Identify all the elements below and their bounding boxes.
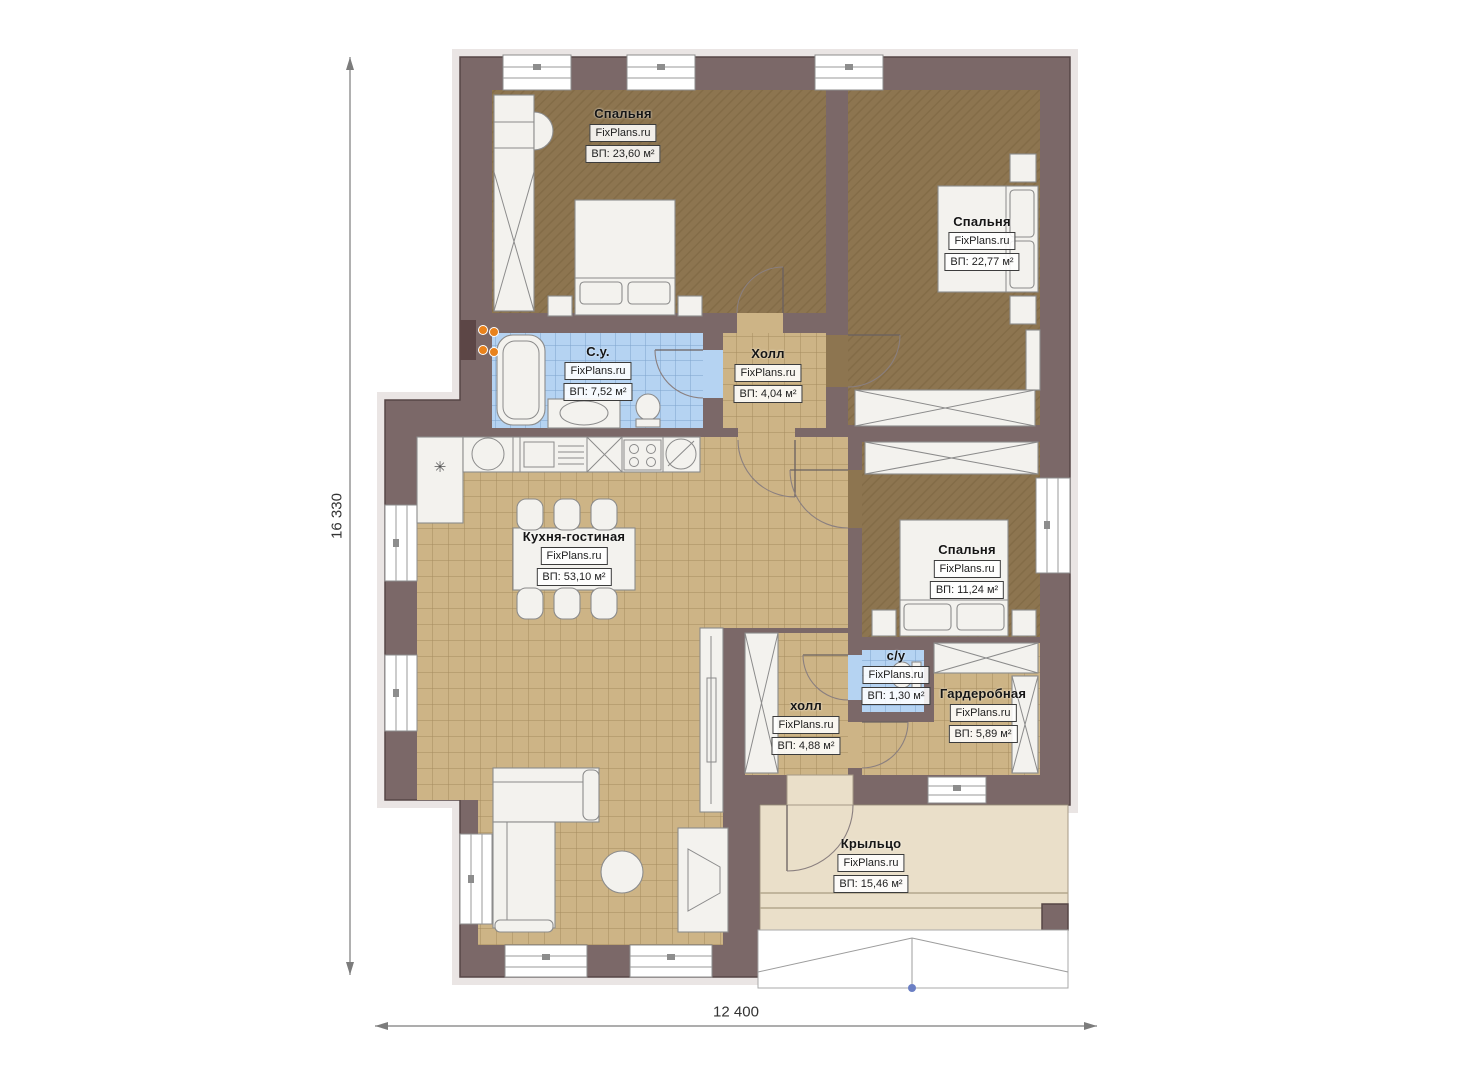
floor-plan-page: ✳	[0, 0, 1474, 1080]
dimension-width: 12 400	[713, 1004, 759, 1021]
nightstand	[1010, 154, 1036, 182]
nightstand	[548, 296, 572, 316]
room-name: Спальня	[594, 106, 652, 121]
dimension-height: 16 330	[329, 493, 346, 539]
nightstand	[1010, 296, 1036, 324]
vanity	[548, 399, 620, 428]
window	[630, 945, 712, 977]
room-label-porch: Крыльцо FixPlans.ru ВП: 15,46 м²	[833, 836, 908, 893]
room-name: С.у.	[586, 344, 610, 359]
room-label-kitchen: Кухня-гостиная FixPlans.ru ВП: 53,10 м²	[523, 529, 625, 586]
nightstand	[872, 610, 896, 636]
nightstand	[678, 296, 702, 316]
pillow	[957, 604, 1004, 630]
room-label-bedroom-1: Спальня FixPlans.ru ВП: 23,60 м²	[585, 106, 660, 163]
room-name: с/у	[887, 648, 906, 663]
fridge	[417, 437, 463, 523]
watermark: FixPlans.ru	[589, 124, 656, 142]
room-name: Спальня	[938, 542, 996, 557]
pillow	[628, 282, 670, 304]
watermark: FixPlans.ru	[862, 666, 929, 684]
watermark: FixPlans.ru	[837, 854, 904, 872]
watermark: FixPlans.ru	[933, 560, 1000, 578]
room-area: ВП: 7,52 м²	[563, 383, 632, 401]
room-name: Кухня-гостиная	[523, 529, 625, 544]
watermark: FixPlans.ru	[734, 364, 801, 382]
window	[815, 55, 883, 90]
floor-plan-canvas: ✳	[0, 0, 1474, 1080]
canopy-node	[908, 984, 916, 992]
watermark: FixPlans.ru	[564, 362, 631, 380]
room-name: Крыльцо	[841, 836, 902, 851]
room-area: ВП: 4,04 м²	[733, 385, 802, 403]
window	[505, 945, 587, 977]
window	[928, 777, 986, 803]
window	[385, 505, 417, 581]
porch-floor	[760, 805, 1068, 930]
room-area: ВП: 11,24 м²	[930, 581, 1004, 599]
room-label-hall-1: Холл FixPlans.ru ВП: 4,04 м²	[733, 346, 802, 403]
room-area: ВП: 5,89 м²	[948, 725, 1017, 743]
room-name: холл	[790, 698, 822, 713]
room-area: ВП: 15,46 м²	[833, 875, 908, 893]
room-area: ВП: 1,30 м²	[861, 687, 930, 705]
room-name: Спальня	[953, 214, 1011, 229]
pillow	[580, 282, 622, 304]
wardrobe-cabinet	[494, 95, 534, 311]
nightstand	[1012, 610, 1036, 636]
room-area: ВП: 53,10 м²	[536, 568, 611, 586]
room-label-bedroom-3: Спальня FixPlans.ru ВП: 11,24 м²	[930, 542, 1004, 599]
watermark: FixPlans.ru	[772, 716, 839, 734]
room-label-bedroom-2: Спальня FixPlans.ru ВП: 22,77 м²	[944, 214, 1019, 271]
toilet-tank	[636, 419, 660, 427]
watermark: FixPlans.ru	[540, 547, 607, 565]
vent-symbol: ✳	[434, 459, 447, 476]
room-name: Гардеробная	[940, 686, 1026, 701]
room-label-wc-2: с/у FixPlans.ru ВП: 1,30 м²	[861, 648, 930, 705]
room-area: ВП: 4,88 м²	[771, 737, 840, 755]
window-niche	[1026, 330, 1040, 390]
window	[460, 834, 492, 924]
porch-column	[1042, 904, 1068, 930]
watermark: FixPlans.ru	[949, 704, 1016, 722]
room-area: ВП: 23,60 м²	[585, 145, 660, 163]
room-label-wardrobe: Гардеробная FixPlans.ru ВП: 5,89 м²	[940, 686, 1026, 743]
window	[627, 55, 695, 90]
room-label-bathroom: С.у. FixPlans.ru ВП: 7,52 м²	[563, 344, 632, 401]
coffee-table	[601, 851, 643, 893]
pillow	[904, 604, 951, 630]
window	[1036, 478, 1070, 573]
porch-details	[758, 893, 1068, 992]
window	[503, 55, 571, 90]
toilet-bowl	[636, 394, 660, 420]
room-name: Холл	[751, 346, 784, 361]
watermark: FixPlans.ru	[948, 232, 1015, 250]
room-label-hall-2: холл FixPlans.ru ВП: 4,88 м²	[771, 698, 840, 755]
room-area: ВП: 22,77 м²	[944, 253, 1019, 271]
window	[385, 655, 417, 731]
